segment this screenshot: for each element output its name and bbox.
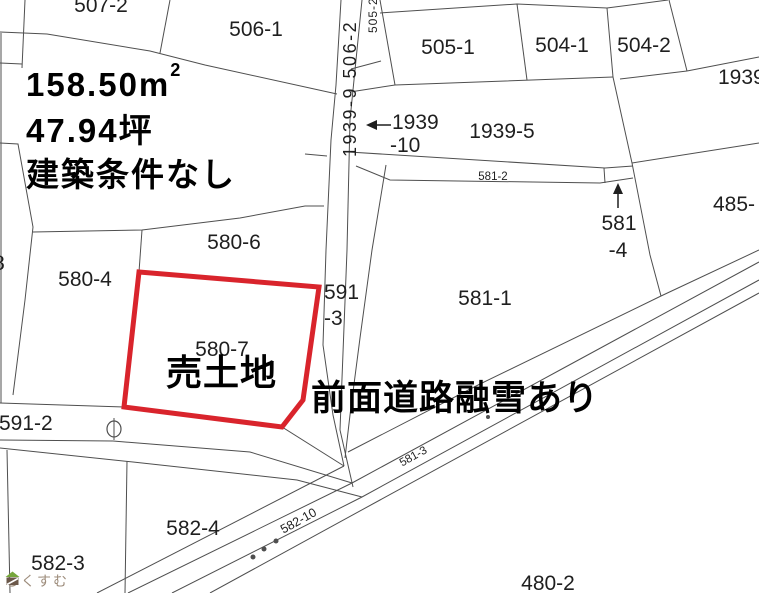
parcel-label-485-clipped: 485- [713,193,755,216]
parcel-label-582-10: 582-10 [278,505,319,536]
boundary-dots [251,415,491,560]
parcel-label-580-6: 580-6 [207,231,261,254]
parcel-label-582-4: 582-4 [166,517,220,540]
parcel-label-581-1: 581-1 [458,287,512,310]
arrow-left-icon [366,120,391,130]
parcel-label-581-2: 581-2 [478,171,507,183]
area-sqm-text: 158.50m2 [26,68,182,103]
sqm-superscript: 2 [170,60,182,80]
parcel-label-580-4: 580-4 [58,268,112,291]
building-condition-text: 建築条件なし [26,158,236,193]
parcel-label-507-2: 507-2 [74,0,128,17]
for-sale-label: 売土地 [166,354,277,392]
survey-marker-icon [107,418,121,440]
watermark: らくすむ [5,571,69,591]
cadastral-map: 507-2 506-1 505-1 504-1 504-2 1939 1939 … [0,0,759,593]
parcel-label-591-3-line1: 591 [324,281,359,304]
parcel-label-591-2: 591-2 [0,412,53,435]
parcel-label-591-3-line2: -3 [324,307,343,330]
parcel-label-1939-5: 1939-5 [469,120,534,143]
road-snowmelt-note: 前面道路融雪あり [311,381,599,418]
parcel-label-581-4-line2: -4 [609,239,628,262]
parcel-label-1939-10-line1: 1939 [392,111,439,134]
parcel-label-505-2: 505-2 [366,0,380,33]
parcel-label-road-strip-vertical: 1939-9 506-2 [340,20,360,157]
house-flag-icon [5,571,20,586]
arrow-up-icon [613,183,623,208]
parcel-label-581-4-line1: 581 [601,212,636,235]
parcel-label-480-2: 480-2 [521,572,575,593]
parcel-label-581-3: 581-3 [398,444,430,469]
parcel-label-1939-right-clipped: 1939 [718,66,759,89]
parcel-label-505-1: 505-1 [421,36,475,59]
area-sqm-value: 158.50m [26,66,170,103]
parcel-label-506-1: 506-1 [229,18,283,41]
parcel-label-504-2: 504-2 [617,34,671,57]
parcel-label-left-edge-clipped: 8 [0,252,5,275]
parcel-label-504-1: 504-1 [535,34,589,57]
parcel-label-1939-10-line2: -10 [390,134,420,157]
area-tsubo-text: 47.94坪 [26,114,154,149]
